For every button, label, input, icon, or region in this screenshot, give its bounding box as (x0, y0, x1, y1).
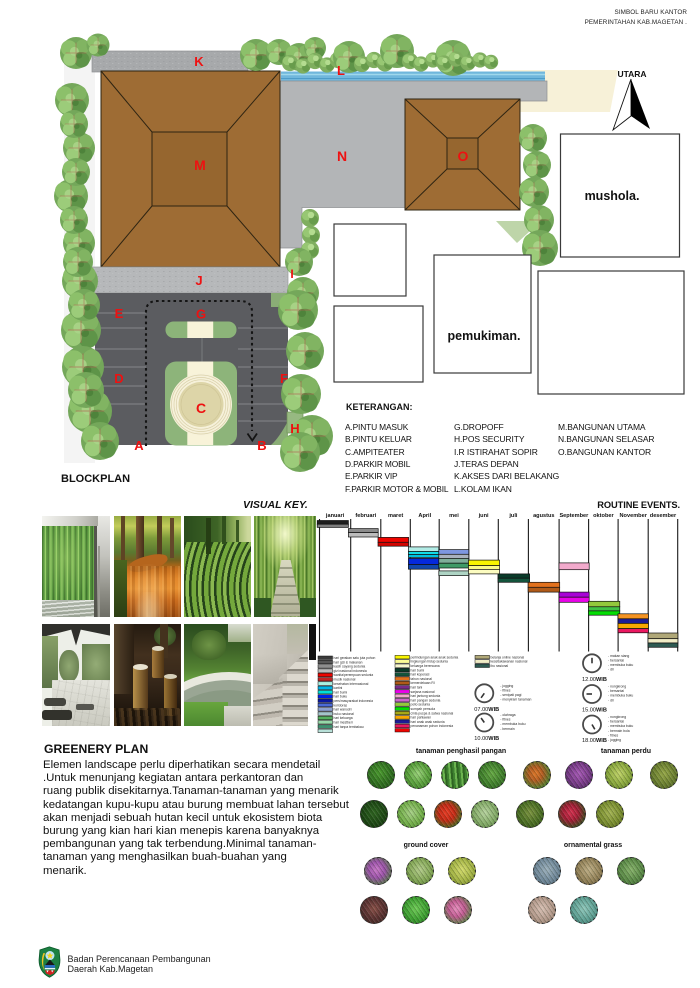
svg-text:januari: januari (325, 513, 345, 519)
svg-text:oktober: oktober (593, 513, 614, 519)
svg-text:07.00WIB: 07.00WIB (474, 707, 499, 713)
svg-text:agustus: agustus (533, 513, 554, 519)
svg-text:- fitnes: - fitnes (500, 718, 510, 722)
svg-text:- makan siang: - makan siang (608, 654, 629, 658)
svg-text:15.00WIB: 15.00WIB (582, 708, 607, 714)
svg-text:April: April (418, 513, 431, 519)
svg-text:- membuka buku: - membuka buku (608, 694, 633, 698)
svg-text:mei: mei (449, 513, 459, 519)
svg-text:- bermain bola: - bermain bola (608, 729, 630, 733)
svg-text:- bermain: - bermain (500, 727, 514, 731)
svg-text:desember: desember (650, 513, 677, 519)
svg-text:- fitnes: - fitnes (500, 688, 510, 692)
svg-text:- menyiram tanaman: - menyiram tanaman (500, 698, 531, 702)
svg-text:- nongkrong: - nongkrong (608, 685, 626, 689)
svg-text:- bersantai: - bersantai (608, 720, 624, 724)
svg-text:12.00WIB: 12.00WIB (582, 677, 607, 683)
svg-text:- fitnes: - fitnes (608, 733, 618, 737)
svg-text:penanaman pohon indonesia: penanaman pohon indonesia (411, 724, 454, 728)
svg-text:- membuka buku: - membuka buku (608, 724, 633, 728)
svg-text:November: November (620, 513, 648, 519)
svg-text:- senipati pagi: - senipati pagi (500, 693, 521, 697)
svg-text:- dll: - dll (608, 668, 614, 672)
svg-text:- nongkrong: - nongkrong (608, 715, 626, 719)
svg-text:- membuka buku: - membuka buku (608, 663, 633, 667)
svg-text:- jogging: - jogging (608, 738, 621, 742)
svg-text:ibu nasional: ibu nasional (491, 664, 509, 668)
svg-text:- bersantai: - bersantai (608, 689, 624, 693)
svg-text:- jogging: - jogging (500, 684, 513, 688)
svg-text:hari tanpa tembakau: hari tanpa tembakau (334, 725, 364, 729)
svg-text:- olahraga: - olahraga (500, 713, 515, 717)
svg-text:- dll: - dll (608, 698, 614, 702)
svg-text:februari: februari (355, 513, 376, 519)
svg-text:September: September (559, 513, 589, 519)
svg-text:10.00WIB: 10.00WIB (474, 736, 499, 742)
svg-text:- bersantai: - bersantai (608, 658, 624, 662)
svg-text:18.00WIB: 18.00WIB (582, 738, 607, 744)
svg-text:juni: juni (478, 513, 489, 519)
svg-text:- membuka buku: - membuka buku (500, 722, 525, 726)
svg-text:juli: juli (508, 513, 518, 519)
svg-text:maret: maret (388, 513, 403, 519)
